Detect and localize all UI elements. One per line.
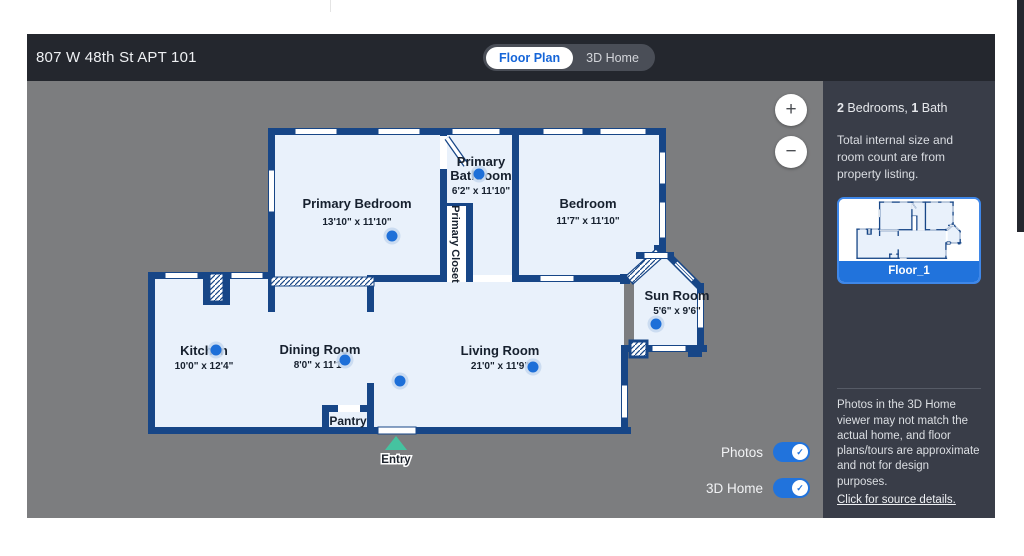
floorplan-drawing: Primary Bedroom 13'10" x 11'10" Primary … [27,81,823,518]
photo-marker[interactable] [337,352,354,369]
photos-toggle-row: Photos ✓ [721,442,810,462]
listing-note: Total internal size and room count are f… [837,132,981,182]
background-window-edge [1017,0,1024,232]
room-label-pantry: Pantry [329,414,367,428]
photo-marker[interactable] [471,166,488,183]
room-label-primary-bedroom: Primary Bedroom [302,196,411,211]
beds-count: 2 [837,101,844,115]
floorplan-canvas[interactable]: Primary Bedroom 13'10" x 11'10" Primary … [27,81,823,518]
header-bar: 807 W 48th St APT 101 Floor Plan 3D Home [27,34,995,81]
photo-marker[interactable] [384,228,401,245]
toggle-check-icon: ✓ [792,444,808,460]
floorplan-viewer-window: 807 W 48th St APT 101 Floor Plan 3D Home [27,34,995,518]
photo-marker[interactable] [648,316,665,333]
source-details-link[interactable]: Click for source details. [837,494,956,506]
home3d-toggle-label: 3D Home [706,481,763,496]
room-label-bedroom: Bedroom [559,196,616,211]
zoom-out-button[interactable]: − [775,136,807,168]
toggle-check-icon: ✓ [792,480,808,496]
room-label-living-room: Living Room [461,343,540,358]
room-dims-primary-bedroom: 13'10" x 11'10" [322,217,392,228]
entry-label: Entry [381,454,411,466]
room-dims-sun-room: 5'6" x 9'6" [653,306,701,317]
beds-text: Bedrooms, [844,101,911,115]
photo-marker[interactable] [208,342,225,359]
floor-thumbnail-label: Floor_1 [839,261,979,282]
home3d-toggle-row: 3D Home ✓ [706,478,810,498]
home3d-toggle[interactable]: ✓ [773,478,810,498]
beds-baths-summary: 2 Bedrooms, 1 Bath [837,101,981,115]
floor-thumbnail-card[interactable]: Floor_1 [837,197,981,284]
floor-thumbnail-plan [839,199,979,261]
screenshot-root: 807 W 48th St APT 101 Floor Plan 3D Home [0,0,1024,556]
room-dims-living-room: 21'0" x 11'9" [471,361,529,372]
photos-toggle-label: Photos [721,445,763,460]
photo-marker[interactable] [392,373,409,390]
room-dims-bedroom: 11'7" x 11'10" [556,216,619,227]
disclaimer-text: Photos in the 3D Home viewer may not mat… [837,398,981,490]
photos-toggle[interactable]: ✓ [773,442,810,462]
address-title: 807 W 48th St APT 101 [36,49,197,66]
content-area: Primary Bedroom 13'10" x 11'10" Primary … [27,81,995,518]
room-dims-primary-bathroom: 6'2" x 11'10" [452,186,510,197]
zoom-in-button[interactable]: + [775,94,807,126]
room-label-sun-room: Sun Room [645,288,710,303]
entry-arrow-icon [385,436,407,450]
tab-3d-home[interactable]: 3D Home [573,47,652,69]
room-dims-kitchen: 10'0" x 12'4" [175,361,234,372]
sidebar-footer: Photos in the 3D Home viewer may not mat… [837,388,981,508]
baths-text: Bath [918,101,947,115]
info-sidebar: 2 Bedrooms, 1 Bath Total internal size a… [823,81,995,518]
tab-floor-plan[interactable]: Floor Plan [486,47,573,69]
view-mode-segmented-control: Floor Plan 3D Home [483,44,655,71]
photo-marker[interactable] [525,359,542,376]
window-edge-artifact [330,0,331,12]
room-label-primary-closet: Primary Closet [449,205,461,283]
plan-walls [148,128,707,434]
